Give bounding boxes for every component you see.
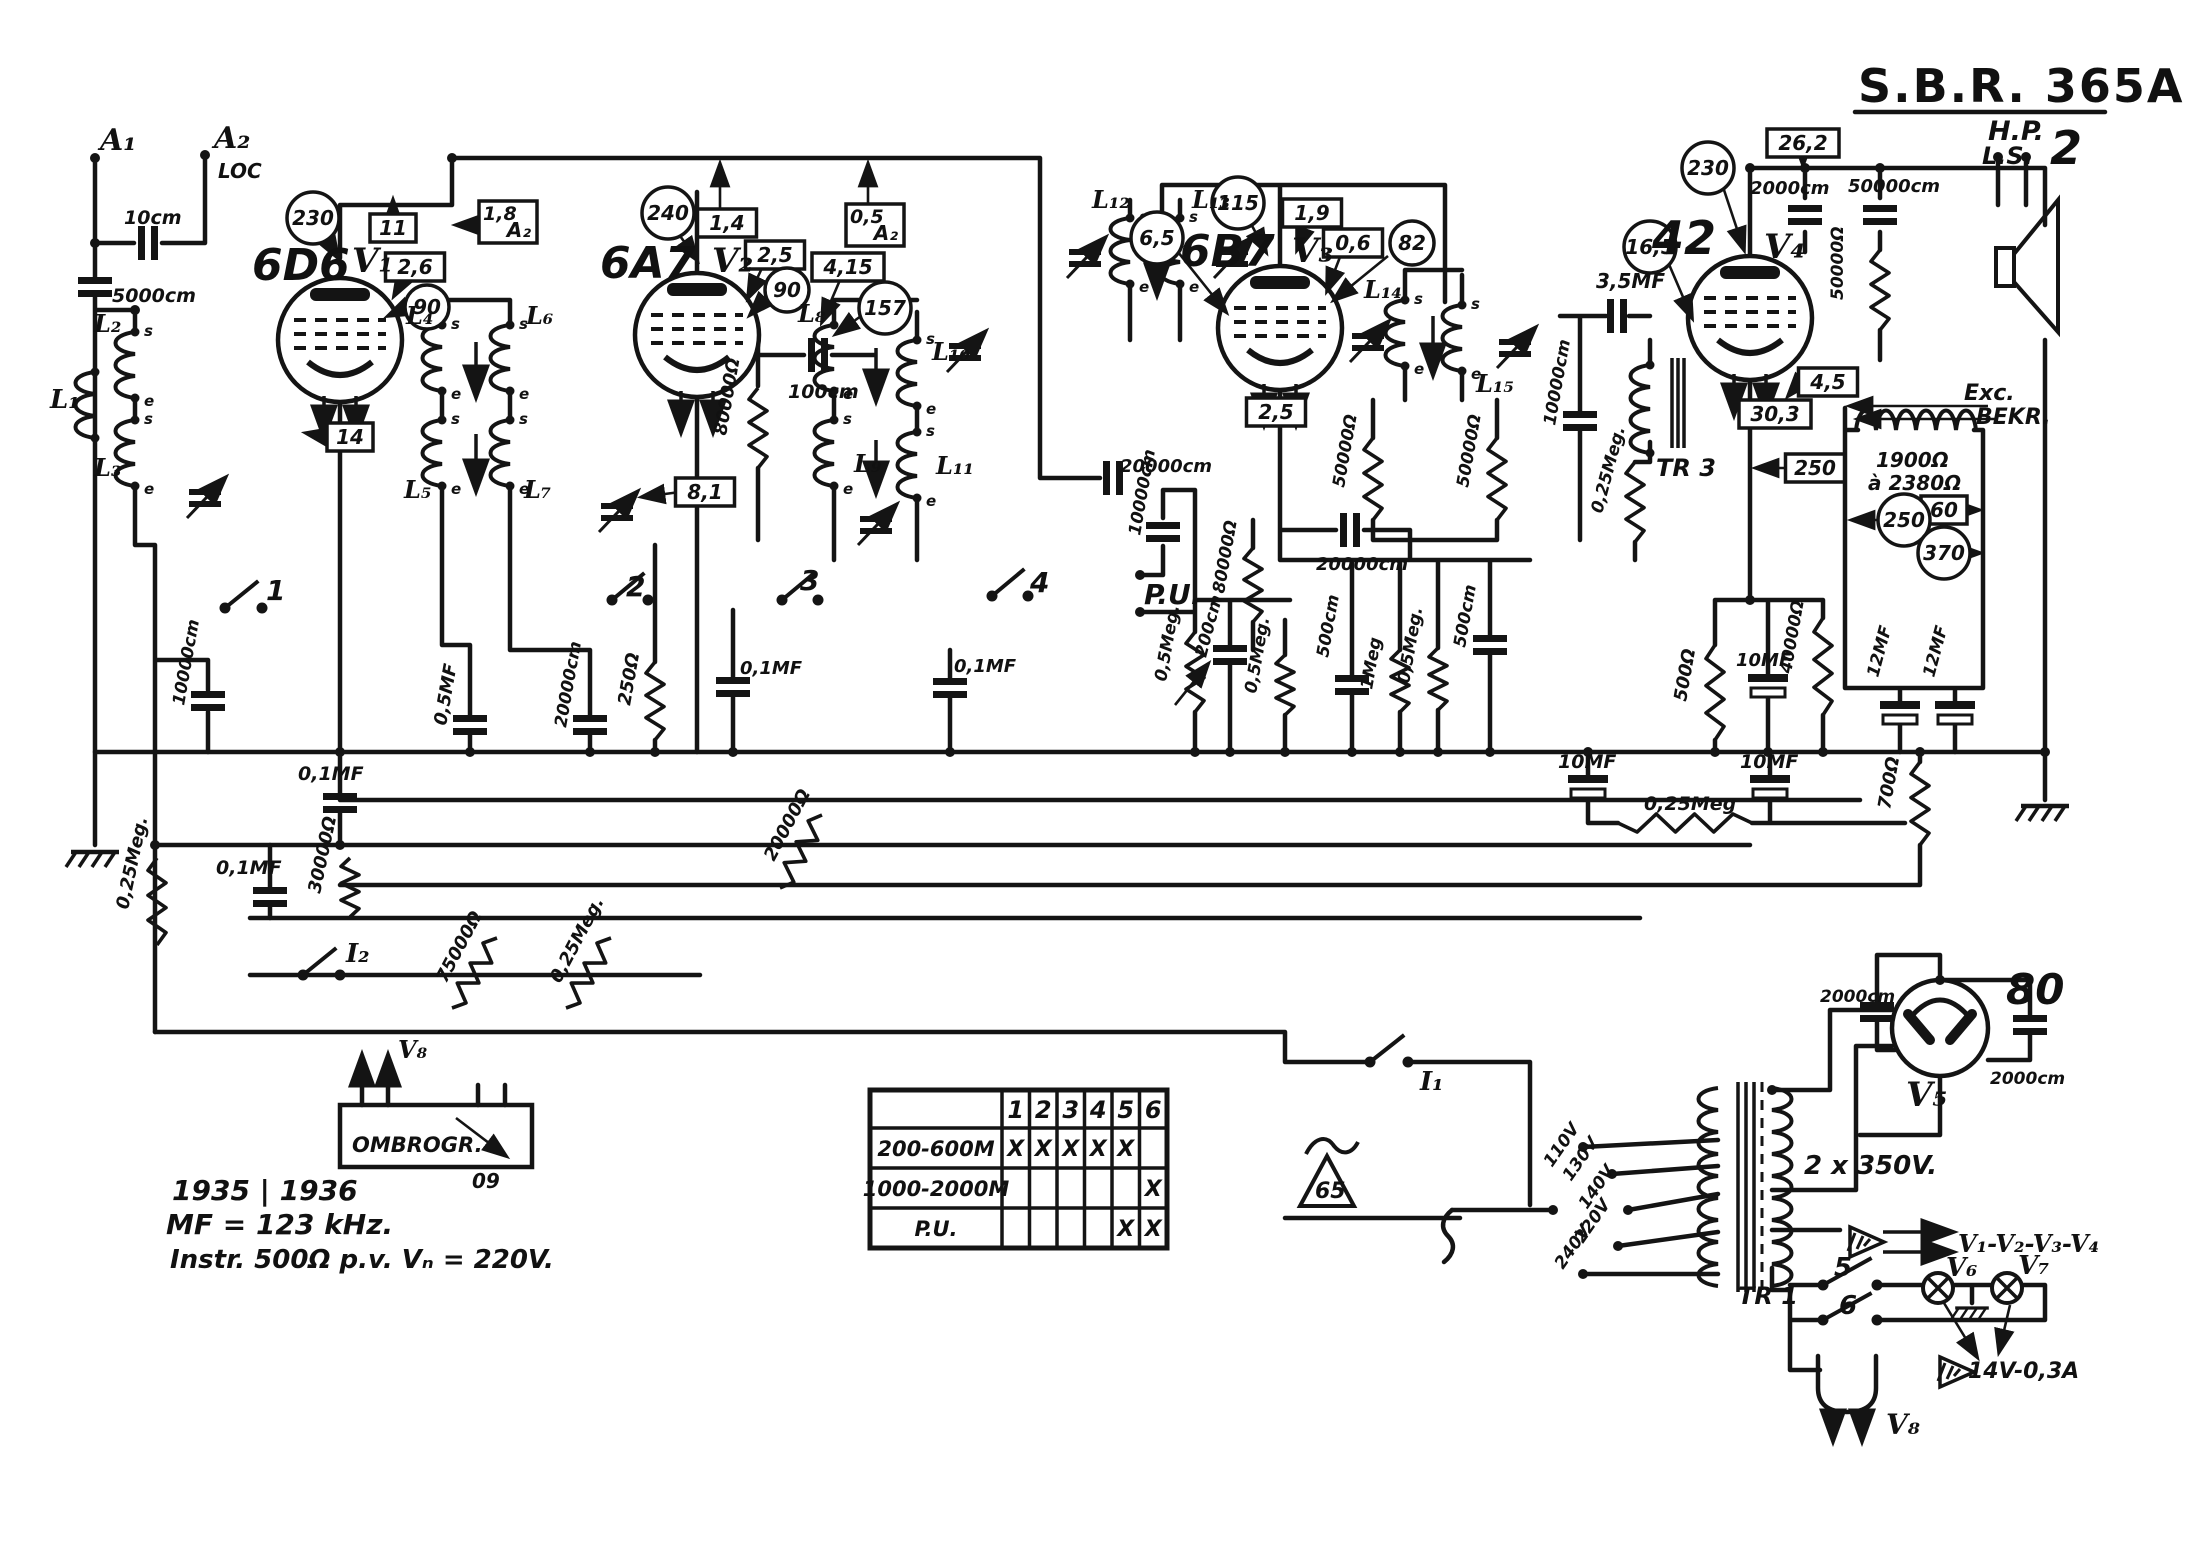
leader-28 xyxy=(1944,1303,1977,1357)
meas-box-sub-16: A₂ xyxy=(872,221,898,245)
coil-11-end-mark: e xyxy=(1139,278,1149,296)
capacitor-15 xyxy=(1340,513,1360,547)
tr1-primary xyxy=(1699,1088,1719,1286)
table-col-2: 2 xyxy=(1035,1096,1052,1124)
val-10mf-a: 10MF xyxy=(1558,751,1616,773)
resistor-8 xyxy=(1244,548,1262,622)
junction-21 xyxy=(1915,747,1925,757)
val-05meg-2: 0,5Meg. xyxy=(1241,615,1274,695)
table-mark-2-4: X xyxy=(1115,1217,1135,1242)
junction-9 xyxy=(945,747,955,757)
switch-0 xyxy=(220,581,268,614)
val-01mf-v1: 0,1MF xyxy=(298,763,364,785)
sw-3: 3 xyxy=(800,564,819,597)
switch-5 xyxy=(1365,1035,1414,1068)
val-12mf-a: 12MF xyxy=(1864,623,1897,679)
sw-5: 5 xyxy=(1834,1253,1852,1283)
ant-a1: A₁ xyxy=(97,123,136,158)
meas-box-val-3: 1,4 xyxy=(709,211,744,235)
coil-1-start-mark: s xyxy=(144,322,153,340)
capacitor-16 xyxy=(1563,411,1597,431)
val-2000cm-out: 2000cm xyxy=(1750,178,1830,199)
junction-6 xyxy=(585,747,595,757)
junction-31 xyxy=(1623,1205,1633,1215)
label-ls: L.S. xyxy=(1982,142,2033,170)
sw-2: 2 xyxy=(626,570,645,603)
capacitor-2 xyxy=(323,793,357,813)
note-2: MF = 123 kHz. xyxy=(166,1208,393,1241)
coil-8-start-mark: s xyxy=(843,410,852,428)
table-mark-0-1: X xyxy=(1033,1137,1053,1162)
val-20000cm-a: 20000cm xyxy=(1120,456,1212,477)
trimmer-2 xyxy=(858,505,896,545)
tube-ref-v3: V₃ xyxy=(1292,231,1333,271)
meas-box-25: 2,5 xyxy=(746,241,805,269)
junction-4 xyxy=(335,747,345,757)
tube-ref-v4: V₄ xyxy=(1764,227,1805,267)
coil-5-end-mark: e xyxy=(519,385,529,403)
coil-l13: L₁₃ xyxy=(1191,185,1230,214)
coil-l6: L₆ xyxy=(525,301,553,330)
ref-i1: I₁ xyxy=(1419,1067,1444,1097)
tube-v3-6b7-anode xyxy=(1250,276,1310,289)
capacitor-9 xyxy=(191,691,225,711)
val-40000: 40000Ω xyxy=(1776,599,1809,676)
table-mark-0-4: X xyxy=(1115,1137,1135,1162)
capacitor-8 xyxy=(933,678,967,698)
table-col-6: 6 xyxy=(1145,1096,1162,1124)
junction-36 xyxy=(1767,1085,1777,1095)
mains-plug-v8 xyxy=(1818,1356,1876,1412)
table-mark-0-3: X xyxy=(1088,1137,1108,1162)
table-col-5: 5 xyxy=(1117,1096,1134,1124)
table-row-1000-2000M: 1000-2000M xyxy=(863,1177,1010,1201)
coil-l3: L₃ xyxy=(93,453,121,482)
sw-1: 1 xyxy=(266,574,285,607)
capacitor-17 xyxy=(1607,299,1627,333)
junction-37 xyxy=(1745,163,1755,173)
label-ombrogr: OMBROGR. xyxy=(352,1133,483,1157)
junction-14 xyxy=(1395,747,1405,757)
coil-l7: L₇ xyxy=(523,475,551,504)
coil-l10: L₁₀ xyxy=(931,337,970,366)
val-50000cm: 50000cm xyxy=(1848,176,1940,197)
meas-box-val-10: 26,2 xyxy=(1778,131,1827,155)
label-65: 65 xyxy=(1315,1179,1346,1204)
meas-box-415: 4,15 xyxy=(812,253,884,281)
table-col-4: 4 xyxy=(1089,1096,1107,1124)
val-1900: 1900Ω xyxy=(1876,448,1949,472)
val-5000cm: 5000cm xyxy=(112,285,196,307)
resistor-11 xyxy=(1429,648,1447,710)
meas-box-val-8: 0,6 xyxy=(1335,231,1371,255)
meas-box-val-11: 30,3 xyxy=(1750,402,1799,426)
capacitor-11 xyxy=(1213,645,1247,665)
resistor-14 xyxy=(1626,462,1644,542)
tube-v4-42-anode xyxy=(1720,266,1780,279)
val-1meg: 1Meg xyxy=(1357,636,1386,691)
junction-16 xyxy=(1485,747,1495,757)
coil-3-end-mark: e xyxy=(451,385,461,403)
coil-2-start-mark: s xyxy=(144,410,153,428)
table-mark-0-2: X xyxy=(1060,1137,1080,1162)
coil-12-end-mark: e xyxy=(1189,278,1199,296)
meas-box-sub-15: A₂ xyxy=(505,218,531,242)
speaker xyxy=(1996,200,2058,332)
junction-0 xyxy=(90,153,100,163)
meas-circle-val-9: 230 xyxy=(1687,156,1729,180)
val-30000: 30000Ω xyxy=(304,814,341,895)
junction-41 xyxy=(447,153,457,163)
trimmer-4 xyxy=(1067,238,1105,278)
note-1: 1935 | 1936 xyxy=(172,1174,358,1207)
val-025meg-tr3: 0,25Meg. xyxy=(1588,424,1630,515)
junction-23 xyxy=(150,840,160,850)
val-100cm: 100cm xyxy=(788,381,859,403)
ground-symbol-0 xyxy=(66,852,119,867)
coil-l11: L₁₁ xyxy=(935,451,974,480)
capacitor-0 xyxy=(138,226,158,260)
meas-box-11: 11 xyxy=(370,214,416,242)
capacitor-1 xyxy=(78,277,112,297)
meas-box-val-6: 8,1 xyxy=(687,480,722,504)
meas-box-val-5: 4,15 xyxy=(822,255,872,279)
coil-l4: L₄ xyxy=(405,301,433,330)
val-80000-pu: 80000Ω xyxy=(1209,519,1241,595)
capacitor-18 xyxy=(1788,205,1822,225)
val-025meg-left: 0,25Meg. xyxy=(112,814,152,911)
val-12mf-b: 12MF xyxy=(1920,623,1953,679)
speaker-driver xyxy=(1996,248,2014,286)
junction-32 xyxy=(1613,1241,1623,1251)
table-mark-1-5: X xyxy=(1143,1177,1163,1202)
tr1-secondary xyxy=(1772,1088,1792,1286)
val-700ohm: 700Ω xyxy=(1874,755,1904,811)
val-35mf: 3,5MF xyxy=(1596,269,1665,293)
meas-circle-11: 370 xyxy=(1918,527,1970,579)
speaker-horn xyxy=(2014,200,2058,332)
capacitor-6 xyxy=(573,715,607,735)
meas-box-18: 1,8A₂ xyxy=(479,201,537,243)
tube-name-6b7: 6B7 xyxy=(1180,226,1275,277)
electrolytic-4 xyxy=(1748,674,1788,697)
coil-l8: L₈ xyxy=(797,299,826,328)
coil-8-end-mark: e xyxy=(843,480,853,498)
val-50000ohm-out: 50000Ω xyxy=(1828,226,1848,300)
val-10mf-b: 10MF xyxy=(1740,751,1798,773)
coil-5: se xyxy=(491,315,530,403)
dial-lamp-squiggle xyxy=(1306,1139,1358,1154)
electrolytic-0 xyxy=(1880,701,1920,724)
val-50000-a: 50000Ω xyxy=(1329,413,1361,489)
meas-box-05: 0,5A₂ xyxy=(846,204,904,246)
ref-i2: I₂ xyxy=(345,939,370,969)
junction-39 xyxy=(1875,163,1885,173)
junction-13 xyxy=(1347,747,1357,757)
val-01mf-2: 0,1MF xyxy=(740,658,803,679)
meas-box-303: 30,3 xyxy=(1739,400,1811,428)
meas-box-val-14: 60 xyxy=(1930,498,1958,522)
label-exc: Exc. xyxy=(1964,381,2015,406)
sw-6: 6 xyxy=(1839,1291,1857,1321)
meas-circle-val-10: 250 xyxy=(1883,508,1925,532)
junction-2 xyxy=(90,238,100,248)
junction-15 xyxy=(1433,747,1443,757)
capacitor-3 xyxy=(253,887,287,907)
meas-box-45: 4,5 xyxy=(1799,368,1858,396)
sw-4: 4 xyxy=(1029,566,1049,599)
ground-symbol-1 xyxy=(2016,806,2069,821)
meas-circle-val-4: 157 xyxy=(864,296,906,320)
meas-box-val-0: 11 xyxy=(379,216,407,240)
junction-34 xyxy=(1548,1205,1558,1215)
val-2380: à 2380Ω xyxy=(1868,471,1961,495)
coil-13-end-mark: e xyxy=(1414,360,1424,378)
tube-name-6d6: 6D6 xyxy=(252,240,350,291)
junction-24 xyxy=(335,840,345,850)
tube-name-42: 42 xyxy=(1651,211,1716,265)
val-500ohm: 500Ω xyxy=(1670,647,1700,703)
electrolytic-3 xyxy=(1750,775,1790,798)
meas-box-14: 14 xyxy=(327,423,373,451)
leader-19 xyxy=(1668,262,1692,318)
trimmer-0 xyxy=(187,478,225,518)
components: sesesesesesesesesesesesesese112,6141,42,… xyxy=(66,129,2069,1440)
val-025meg-d: 0,25Meg. xyxy=(546,893,609,986)
tube-ref-v1: V₁ xyxy=(352,241,393,281)
ref-tr3: TR 3 xyxy=(1656,454,1716,482)
tube-v5-80-envelope xyxy=(1892,980,1988,1076)
meas-circle-2: 240 xyxy=(642,187,694,239)
val-10cm: 10cm xyxy=(124,207,182,229)
trimmer-7 xyxy=(1497,328,1535,368)
junction-33 xyxy=(1578,1269,1588,1279)
label-filaments: V₁-V₂-V₃-V₄ xyxy=(1958,1229,2099,1258)
meas-box-val-7: 1,9 xyxy=(1294,201,1330,225)
val-05meg-pot: 0,5Meg. xyxy=(1151,603,1184,683)
hatched-arrow-0 xyxy=(1848,1227,1884,1257)
resistor-5 xyxy=(646,662,664,740)
meas-circle-9: 230 xyxy=(1682,142,1734,194)
meas-circle-0: 230 xyxy=(287,192,339,244)
meas-circle-5: 6,5 xyxy=(1131,212,1183,264)
junction-22 xyxy=(2040,747,2050,757)
meas-box-14: 1,4 xyxy=(698,209,757,237)
capacitor-21 xyxy=(2013,1015,2047,1035)
capacitor-19 xyxy=(1863,205,1897,225)
junction-38 xyxy=(1745,595,1755,605)
trimmer-6 xyxy=(1350,322,1388,362)
resistor-15 xyxy=(1706,645,1724,740)
junction-11 xyxy=(1225,747,1235,757)
resistor-19 xyxy=(1871,250,1889,330)
val-2000cm-v5a: 2000cm xyxy=(1820,987,1895,1007)
meas-box-25: 2,5 xyxy=(1247,398,1306,426)
coil-l9: L₉ xyxy=(853,449,882,478)
coil-l1: L₁ xyxy=(49,385,80,415)
tube-name-6a7: 6A7 xyxy=(600,238,696,289)
electrolytic-1 xyxy=(1935,701,1975,724)
label-bekr: BEKR. xyxy=(1976,405,2051,430)
coil-10-start-mark: s xyxy=(926,422,935,440)
meas-box-262: 26,2 xyxy=(1767,129,1839,157)
val-2x350: 2 x 350V. xyxy=(1804,1151,1937,1181)
coil-l12: L₁₂ xyxy=(1091,185,1130,214)
electrolytic-2 xyxy=(1568,775,1608,798)
resistor-9 xyxy=(1276,655,1294,715)
junction-8 xyxy=(728,747,738,757)
junction-18 xyxy=(1710,747,1720,757)
junction-20 xyxy=(1818,747,1828,757)
val-500cm-a: 500cm xyxy=(1313,593,1344,659)
val-01mf-left: 0,1MF xyxy=(216,857,282,879)
tube-v5-80 xyxy=(1892,980,1988,1076)
meas-box-val-2: 14 xyxy=(336,425,364,449)
resistor-17 xyxy=(1618,814,1752,832)
resistor-13 xyxy=(1488,438,1506,520)
val-20000cm-b: 20000cm xyxy=(1316,554,1408,575)
schematic-page: sesesesesesesesesesesesesese112,6141,42,… xyxy=(0,0,2185,1555)
note-3: Instr. 500Ω p.v. Vₙ = 220V. xyxy=(170,1245,554,1275)
table-col-1: 1 xyxy=(1007,1096,1024,1124)
resistor-12 xyxy=(1364,438,1382,520)
meas-box-val-9: 2,5 xyxy=(1258,400,1293,424)
coil-9: se xyxy=(898,330,937,418)
ground-symbol-2 xyxy=(1952,1308,1989,1319)
resistor-18 xyxy=(1911,762,1929,845)
capacitor-5 xyxy=(453,715,487,735)
meas-box-250: 250 xyxy=(1786,454,1845,482)
meas-circle-val-5: 6,5 xyxy=(1139,226,1174,250)
ant-loc: LOC xyxy=(218,159,262,183)
coil-4-end-mark: e xyxy=(451,480,461,498)
ref-tr1: TR 1 xyxy=(1738,1282,1798,1310)
coil-14-start-mark: s xyxy=(1471,295,1480,313)
meas-box-19: 1,9 xyxy=(1283,199,1342,227)
tube-name-80: 80 xyxy=(2006,965,2064,1014)
coil-10-end-mark: e xyxy=(926,492,936,510)
table-mark-0-0: X xyxy=(1005,1137,1025,1162)
meas-box-81: 8,1 xyxy=(676,478,735,506)
meas-circle-val-3: 90 xyxy=(773,278,801,302)
val-01mf-3: 0,1MF xyxy=(954,656,1017,677)
meas-circle-val-2: 240 xyxy=(647,201,689,225)
tr1-core xyxy=(1738,1082,1754,1292)
coil-l5: L₅ xyxy=(403,475,431,504)
meas-circle-4: 157 xyxy=(859,282,911,334)
coil-13-start-mark: s xyxy=(1414,290,1423,308)
coil-9-end-mark: e xyxy=(926,400,936,418)
coil-6-start-mark: s xyxy=(519,410,528,428)
meas-circle-val-7: 82 xyxy=(1398,231,1426,255)
val-20000ohm: 20000Ω xyxy=(760,786,815,865)
capacitor-10 xyxy=(1146,522,1180,542)
table-col-3: 3 xyxy=(1062,1096,1079,1124)
meas-box-val-4: 2,5 xyxy=(757,243,792,267)
band-switch-table: 123456200-600MXXXXX1000-2000MXP.U.XX xyxy=(863,1090,1167,1248)
tr3-core xyxy=(1672,358,1684,448)
junction-10 xyxy=(1190,747,1200,757)
leader-29 xyxy=(1999,1305,2010,1352)
coil-10: se xyxy=(898,422,937,510)
coil-l2: L₂ xyxy=(93,309,121,338)
switch-3 xyxy=(987,569,1034,602)
label-ls2: 2 xyxy=(2050,121,2082,175)
val-250ohm: 250Ω xyxy=(614,651,644,707)
junction-35 xyxy=(1935,975,1945,985)
resistor-16 xyxy=(1814,618,1832,715)
table-mark-2-5: X xyxy=(1143,1217,1163,1242)
val-50000-b: 50000Ω xyxy=(1453,413,1485,489)
schematic-svg: sesesesesesesesesesesesesese112,6141,42,… xyxy=(0,0,2185,1555)
tube-ref-v2: V₂ xyxy=(712,241,753,281)
ant-a2: A₂ xyxy=(211,121,250,156)
trimmer-1 xyxy=(599,492,637,532)
coil-3-start-mark: s xyxy=(451,315,460,333)
val-025meg-b: 0,25Meg xyxy=(1644,793,1736,815)
title-main: S.B.R. 365A. xyxy=(1858,59,2185,113)
coil-1-end-mark: e xyxy=(144,392,154,410)
val-14v: 14V-0,3A xyxy=(1968,1359,2079,1384)
resistor-6 xyxy=(749,388,767,468)
table-row-200-600M: 200-600M xyxy=(877,1137,994,1161)
plug-ref-v8: V₈ xyxy=(1886,1408,1920,1441)
capacitor-7 xyxy=(716,677,750,697)
junction-12 xyxy=(1280,747,1290,757)
coil-4-start-mark: s xyxy=(451,410,460,428)
tube-ref-v5: V₅ xyxy=(1906,1075,1947,1115)
table-row-P.U.: P.U. xyxy=(915,1217,958,1241)
coil-l15: L₁₅ xyxy=(1475,369,1514,398)
meas-circle-7: 82 xyxy=(1390,221,1434,265)
junction-40 xyxy=(1800,163,1810,173)
coil-l14: L₁₄ xyxy=(1363,275,1402,304)
leader-18 xyxy=(1722,184,1744,250)
meas-circle-val-0: 230 xyxy=(292,206,334,230)
capacitor-13 xyxy=(1473,635,1507,655)
coil-8: se xyxy=(815,410,854,498)
label-09: 09 xyxy=(472,1169,500,1193)
resistor-1 xyxy=(341,858,359,917)
ombro-ref-v8: V₈ xyxy=(398,1035,428,1064)
junction-7 xyxy=(650,747,660,757)
meas-box-val-12: 4,5 xyxy=(1809,370,1845,394)
val-2000cm-v5b: 2000cm xyxy=(1990,1069,2065,1089)
junction-5 xyxy=(465,747,475,757)
coil-2-end-mark: e xyxy=(144,480,154,498)
meas-box-val-1: 2,6 xyxy=(397,255,433,279)
meas-box-26: 2,6 xyxy=(386,253,445,281)
meas-box-val-13: 250 xyxy=(1794,456,1836,480)
junction-1 xyxy=(200,150,210,160)
meas-circle-val-11: 370 xyxy=(1923,541,1965,565)
